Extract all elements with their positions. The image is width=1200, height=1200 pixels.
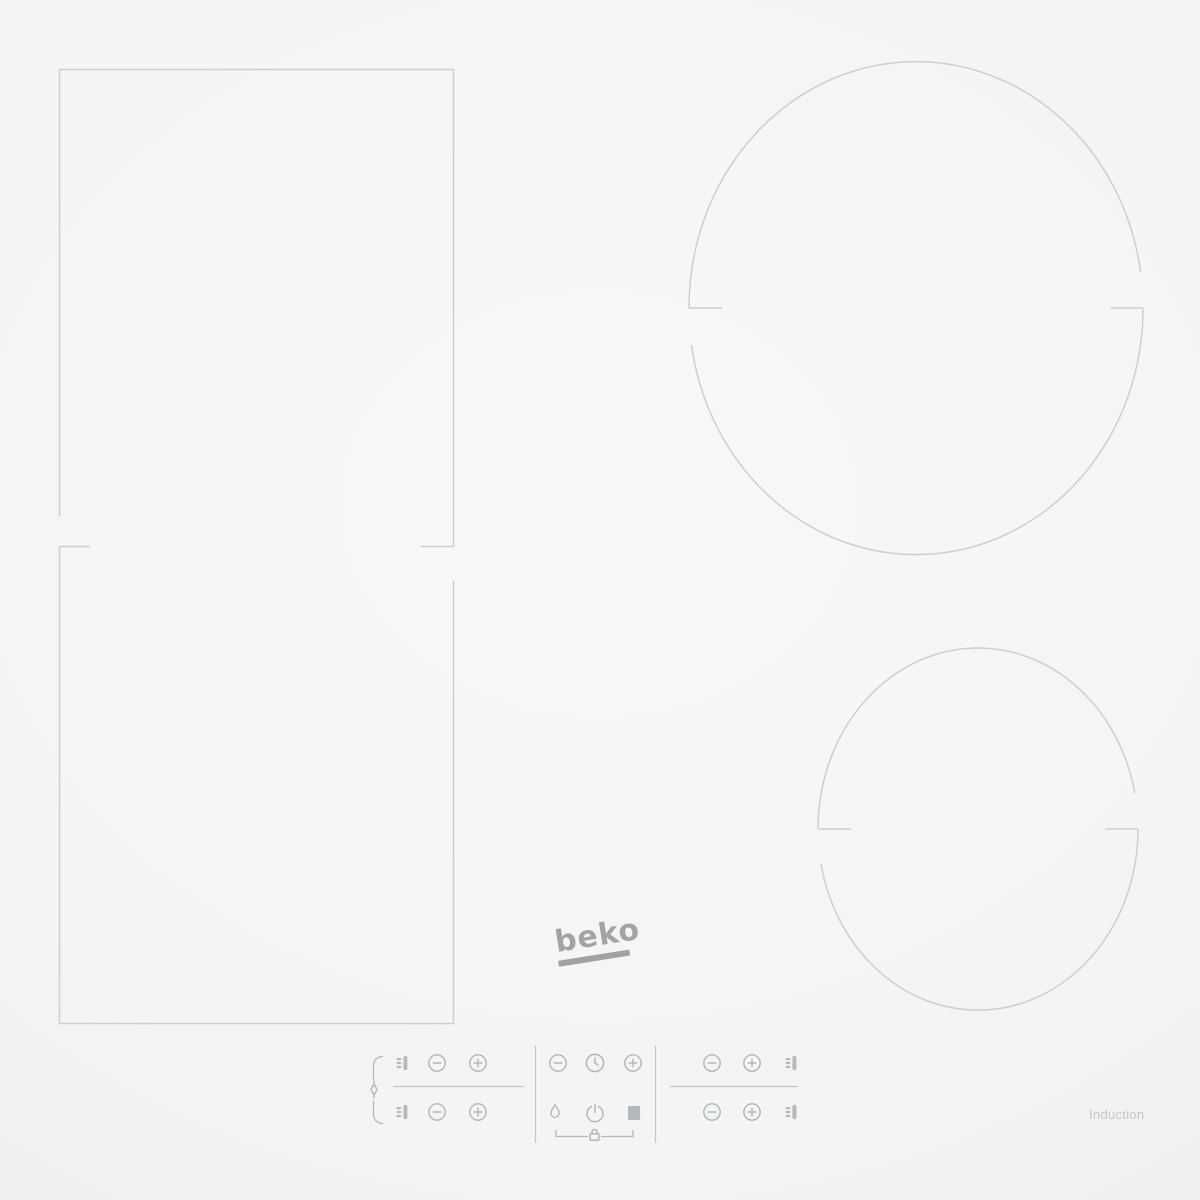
lock-bracket	[602, 1131, 634, 1137]
flex-bracket	[374, 1101, 383, 1124]
cooking-zone-large-outline	[692, 308, 1144, 555]
cooking-zone-medium-outline	[821, 829, 1138, 1010]
cooking-zone-medium-outline	[818, 648, 1135, 829]
pan-zone-icon	[397, 1056, 408, 1070]
minus-button[interactable]	[704, 1104, 720, 1120]
timer-plus-button[interactable]	[625, 1055, 641, 1071]
right-zone-controls	[670, 1055, 798, 1120]
timer-clock-button[interactable]	[586, 1054, 603, 1071]
power-button[interactable]	[587, 1104, 603, 1121]
pan-zone-icon	[786, 1056, 797, 1070]
lock-bracket	[556, 1131, 588, 1137]
stop-button[interactable]	[628, 1106, 640, 1120]
key-lock-icon	[590, 1130, 599, 1141]
minus-button[interactable]	[429, 1104, 445, 1120]
left-zone-controls	[371, 1055, 524, 1124]
induction-label: Induction	[1089, 1107, 1144, 1122]
flex-zone-top-outline	[60, 70, 454, 547]
plus-button[interactable]	[470, 1104, 486, 1120]
cooking-zone-large-outline	[689, 62, 1141, 308]
center-controls	[536, 1046, 656, 1143]
pan-zone-icon	[397, 1105, 408, 1119]
plus-button[interactable]	[470, 1055, 486, 1071]
timer-minus-button[interactable]	[550, 1055, 566, 1071]
plus-button[interactable]	[744, 1104, 760, 1120]
plus-button[interactable]	[744, 1055, 760, 1071]
cooktop-graphics	[0, 0, 1200, 1200]
flex-zone-link-icon	[371, 1081, 377, 1098]
minus-button[interactable]	[429, 1055, 445, 1071]
boost-flame-button[interactable]	[551, 1105, 559, 1118]
flex-bracket	[374, 1057, 383, 1080]
minus-button[interactable]	[704, 1055, 720, 1071]
pan-zone-icon	[786, 1105, 797, 1119]
flex-zone-bottom-outline	[60, 547, 454, 1024]
cooktop-surface: beko Induction	[0, 0, 1200, 1200]
